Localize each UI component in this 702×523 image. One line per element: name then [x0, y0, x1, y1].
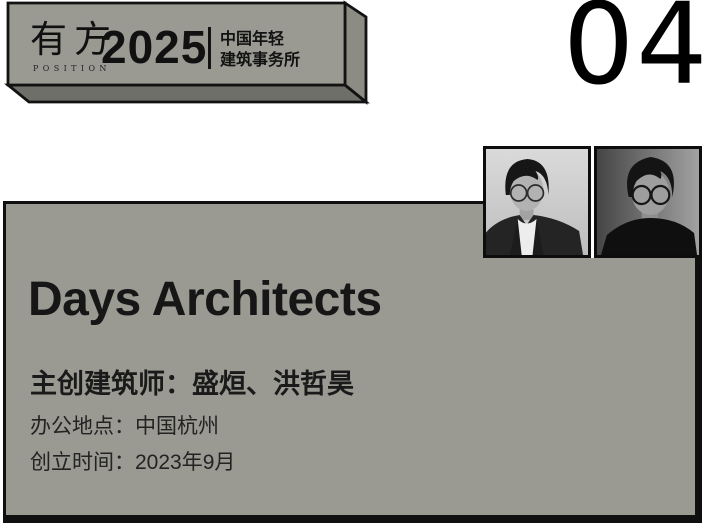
- brand-year: 2025: [101, 24, 207, 70]
- founded-line: 创立时间：2023年9月: [30, 446, 235, 476]
- page-number: 04: [563, 0, 702, 101]
- portrait-photo-left: [483, 146, 591, 258]
- brand-logo-en: POSITION: [33, 64, 111, 73]
- studio-name: Days Architects: [28, 274, 382, 327]
- portrait-illustration-right: [597, 149, 699, 255]
- banner-divider: [208, 27, 211, 69]
- portrait-illustration-left: [486, 149, 588, 255]
- banner-subtitle-line2: 建筑事务所: [220, 50, 300, 71]
- location-line: 办公地点：中国杭州: [30, 410, 219, 440]
- portrait-photos: [483, 146, 702, 258]
- brand-banner: 有方 POSITION 2025 中国年轻 建筑事务所: [0, 0, 374, 110]
- portrait-photo-right: [594, 146, 702, 258]
- banner-subtitle: 中国年轻 建筑事务所: [220, 29, 300, 71]
- architects-line: 主创建筑师：盛烜、洪哲昊: [30, 362, 354, 401]
- banner-subtitle-line1: 中国年轻: [220, 29, 300, 50]
